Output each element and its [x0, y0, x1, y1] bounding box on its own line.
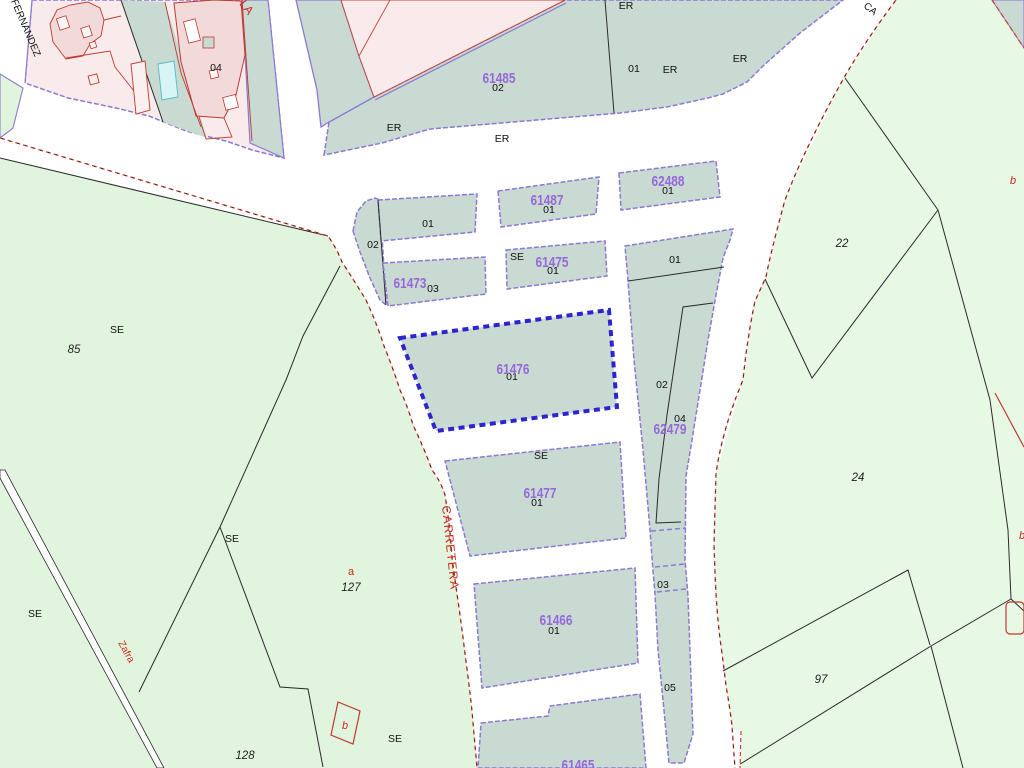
svg-text:128: 128 [235, 750, 255, 762]
svg-text:61473: 61473 [394, 275, 427, 292]
svg-text:ER: ER [495, 133, 510, 145]
svg-text:61466: 61466 [540, 612, 573, 629]
svg-text:22: 22 [835, 238, 849, 250]
svg-text:24: 24 [851, 472, 865, 484]
svg-text:b: b [1019, 530, 1024, 542]
svg-text:b: b [342, 720, 348, 732]
svg-text:SE: SE [388, 733, 402, 745]
svg-text:61465: 61465 [562, 757, 595, 768]
svg-text:SE: SE [510, 251, 524, 263]
svg-text:02: 02 [656, 379, 668, 391]
svg-text:03: 03 [427, 283, 439, 295]
svg-text:61485: 61485 [483, 70, 516, 87]
svg-text:04: 04 [210, 62, 222, 74]
svg-text:61487: 61487 [531, 192, 564, 209]
svg-text:03: 03 [657, 579, 669, 591]
svg-text:62488: 62488 [652, 173, 685, 190]
svg-text:ER: ER [733, 53, 748, 65]
svg-text:ER: ER [387, 122, 402, 134]
svg-text:01: 01 [628, 63, 640, 75]
svg-text:01: 01 [669, 254, 681, 266]
svg-text:SE: SE [534, 450, 548, 462]
svg-text:SE: SE [225, 533, 239, 545]
svg-text:97: 97 [815, 674, 828, 686]
svg-text:62479: 62479 [654, 421, 687, 438]
svg-text:61476: 61476 [497, 361, 530, 378]
svg-text:85: 85 [68, 344, 81, 356]
svg-text:ER: ER [619, 0, 634, 12]
svg-text:02: 02 [367, 239, 379, 251]
svg-text:01: 01 [422, 218, 434, 230]
svg-text:ER: ER [663, 64, 678, 76]
svg-text:SE: SE [110, 324, 124, 336]
svg-text:b: b [1010, 175, 1016, 187]
svg-text:127: 127 [341, 582, 361, 594]
svg-text:61475: 61475 [536, 254, 569, 271]
svg-text:SE: SE [28, 608, 42, 620]
svg-text:05: 05 [664, 682, 676, 694]
svg-text:a: a [348, 566, 355, 578]
svg-text:61477: 61477 [524, 485, 557, 502]
